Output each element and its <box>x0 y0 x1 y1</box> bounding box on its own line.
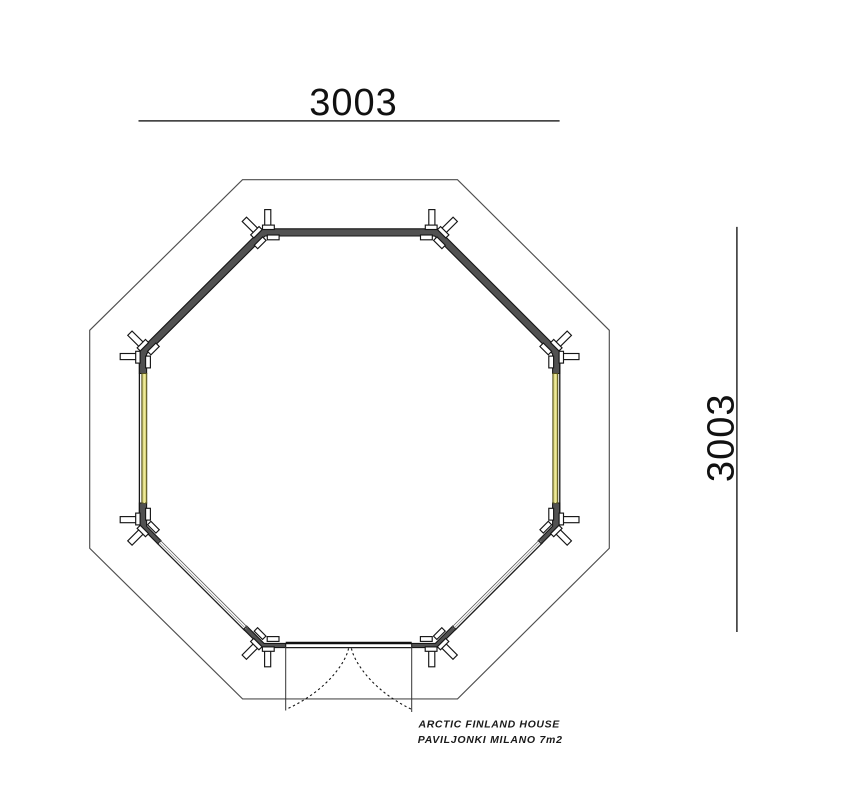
svg-text:PAVILJONKI MILANO 7m2: PAVILJONKI MILANO 7m2 <box>418 734 563 746</box>
svg-text:ARCTIC FINLAND HOUSE: ARCTIC FINLAND HOUSE <box>418 719 561 731</box>
svg-text:3003: 3003 <box>701 394 743 483</box>
svg-text:3003: 3003 <box>309 82 398 124</box>
